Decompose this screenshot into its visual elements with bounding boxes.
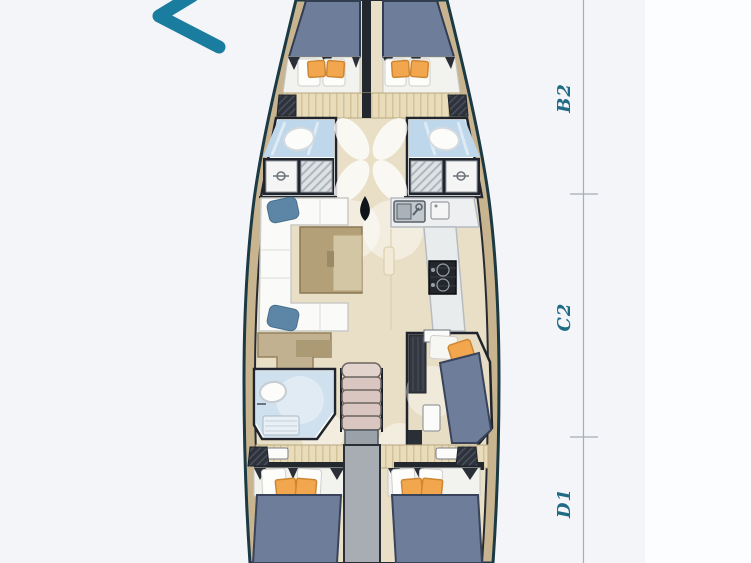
shower-grate: [411, 161, 442, 192]
sink-bowl: [397, 204, 411, 219]
right-background-band: [645, 0, 751, 563]
salon-table-leaf: [333, 235, 362, 291]
ruler-label-c2: C2: [554, 303, 575, 332]
stove-knob: [431, 283, 435, 287]
ruler-label-b2: B2: [554, 83, 575, 114]
counter-module: [431, 202, 449, 219]
wardrobe-starboard: [456, 447, 478, 466]
vanity: [423, 405, 440, 431]
cushion: [410, 60, 428, 77]
stair-step: [342, 403, 381, 417]
mid-cabin-starboard: [406, 330, 492, 446]
ruler-label-d1: D1: [554, 488, 575, 519]
mattress: [253, 495, 341, 563]
wardrobe-starboard: [448, 95, 468, 116]
wardrobe-port: [277, 95, 296, 116]
aft-cabin-port-bed: [253, 468, 344, 563]
floor-hatch: [384, 247, 394, 275]
locker: [408, 430, 422, 445]
engine-corridor: [344, 445, 380, 563]
mattress: [392, 495, 482, 563]
stove-knob: [431, 268, 435, 272]
shower-grate: [301, 161, 332, 192]
knob: [435, 205, 438, 208]
nav-desk-shade: [296, 340, 331, 357]
wardrobe-port: [248, 447, 269, 466]
aft-bathroom: [254, 369, 335, 439]
yacht-layout-page: B2 C2 D1: [0, 0, 751, 563]
aft-section: [248, 445, 488, 563]
table-hinge: [327, 251, 334, 267]
forward-floor: [279, 93, 464, 118]
cushion: [307, 60, 325, 77]
center-divider-wall: [362, 93, 371, 118]
stair-step: [342, 416, 381, 430]
cushion: [391, 60, 409, 77]
stair-step: [342, 390, 381, 404]
stair-step: [342, 363, 381, 378]
yacht-layout-diagram: B2 C2 D1: [0, 0, 751, 563]
cushion: [326, 60, 344, 77]
stair-step: [342, 377, 381, 391]
aft-cabin-starboard-bed: [388, 468, 482, 563]
